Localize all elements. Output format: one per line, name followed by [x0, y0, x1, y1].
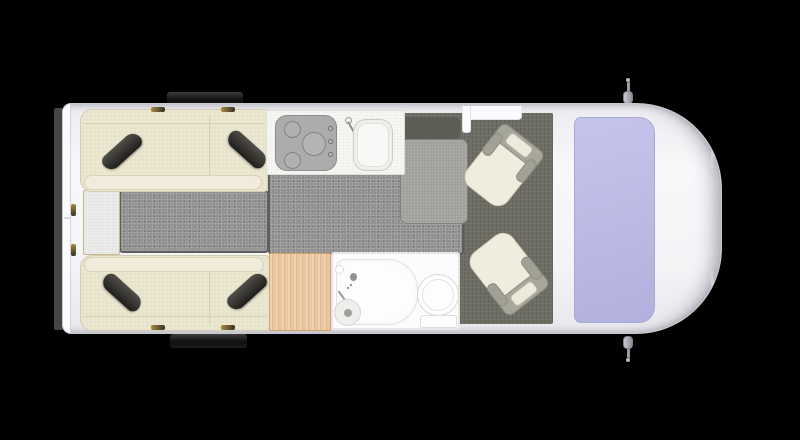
pillow	[99, 130, 145, 173]
kitchen-counter	[266, 110, 405, 175]
burner-icon	[284, 152, 301, 169]
control-knob-icon	[328, 126, 333, 131]
bed-bottom	[80, 255, 270, 331]
shower-drain-icon	[344, 309, 352, 317]
front-bumper-crease	[709, 134, 717, 174]
rear-door-seam	[64, 217, 70, 219]
pillow	[224, 270, 270, 313]
entry-door	[462, 106, 522, 120]
tap-dot	[350, 284, 352, 286]
bed-bolster	[84, 257, 264, 272]
hinge-marker	[71, 204, 76, 216]
kitchen-sink	[353, 119, 393, 171]
toilet-paper-holder-icon	[335, 265, 344, 274]
hinge-marker	[151, 325, 165, 330]
hinge-marker	[151, 107, 165, 112]
control-knob-icon	[328, 152, 333, 157]
bathroom	[331, 252, 460, 330]
rear-step	[83, 190, 120, 255]
front-bumper-crease	[709, 264, 717, 304]
toilet	[417, 274, 459, 316]
antenna-dot-top	[626, 78, 630, 82]
bed-top	[80, 109, 268, 192]
entry-door-frame	[462, 106, 471, 133]
motorhome-floorplan	[0, 0, 800, 440]
aisle-floor	[119, 190, 269, 253]
mattress-seam	[83, 316, 267, 317]
drain-icon	[350, 273, 357, 281]
hinge-marker	[221, 107, 235, 112]
mattress-seam	[209, 272, 210, 326]
entry-step	[398, 117, 460, 139]
toilet-tank	[420, 315, 457, 328]
pillow	[224, 128, 270, 171]
shower-circle	[334, 299, 361, 326]
burner-icon	[302, 132, 326, 156]
sink-basin	[357, 123, 389, 167]
burner-icon	[284, 121, 301, 138]
entry-rug	[400, 139, 468, 224]
cooktop	[275, 115, 337, 171]
wardrobe-cabinet	[269, 253, 331, 331]
toilet-lid	[422, 279, 454, 311]
pillow	[99, 271, 145, 314]
antenna-dot-bottom	[626, 358, 630, 362]
control-knob-icon	[328, 139, 333, 144]
side-mirror-bottom-icon	[623, 336, 633, 349]
mattress-seam	[83, 123, 265, 124]
vehicle-body	[62, 103, 722, 334]
tap-dot	[347, 287, 349, 289]
mattress-seam	[209, 114, 210, 175]
side-mirror-bottom-arm	[627, 348, 630, 358]
windshield	[574, 117, 655, 323]
bed-bolster	[84, 175, 262, 190]
side-window-bottom	[170, 334, 247, 348]
hinge-marker	[221, 325, 235, 330]
hinge-marker	[71, 244, 76, 256]
